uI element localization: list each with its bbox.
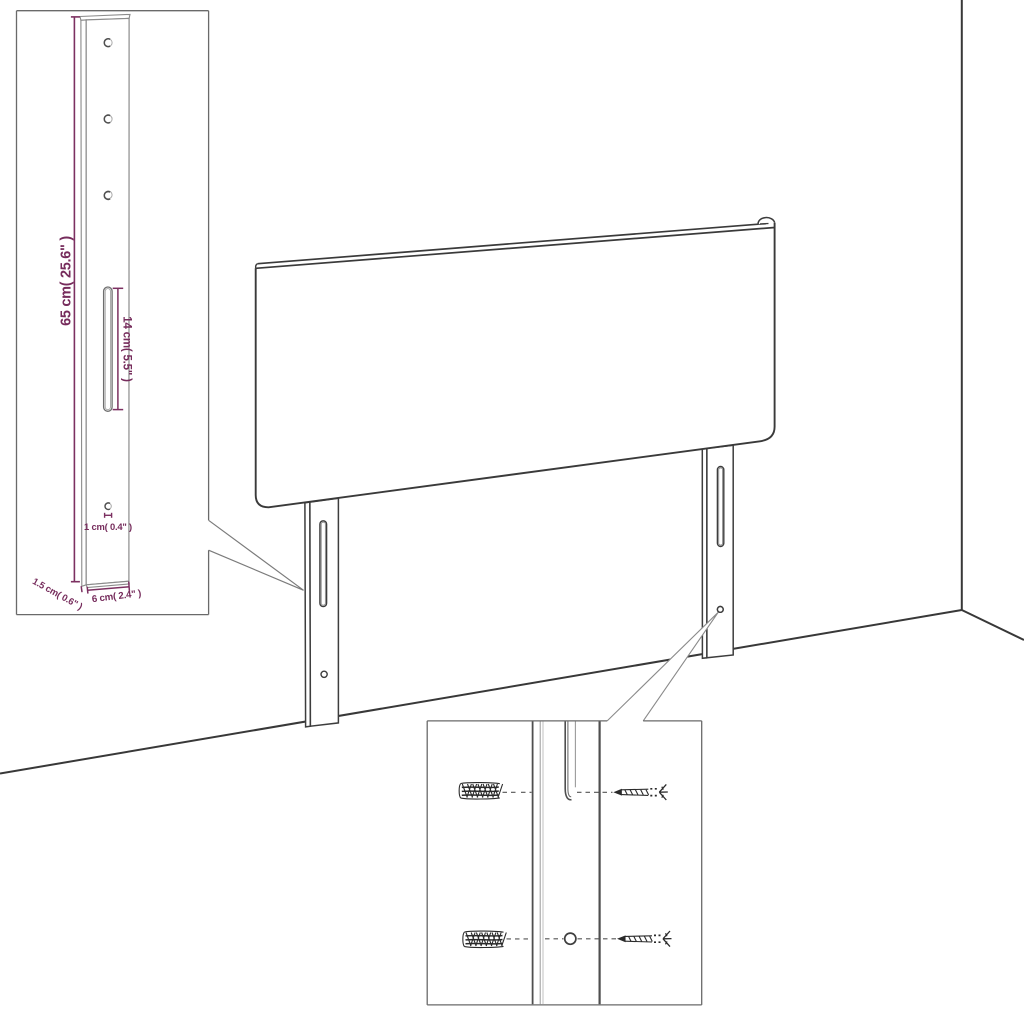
svg-text:65 cm( 25.6" ): 65 cm( 25.6" ) [59,236,75,326]
svg-text:6 cm( 2.4" ): 6 cm( 2.4" ) [91,588,142,605]
svg-text:14 cm( 5.5" ): 14 cm( 5.5" ) [120,316,132,382]
svg-text:1.5 cm( 0.6" ): 1.5 cm( 0.6" ) [31,575,85,611]
svg-text:1 cm( 0.4" ): 1 cm( 0.4" ) [84,521,132,532]
